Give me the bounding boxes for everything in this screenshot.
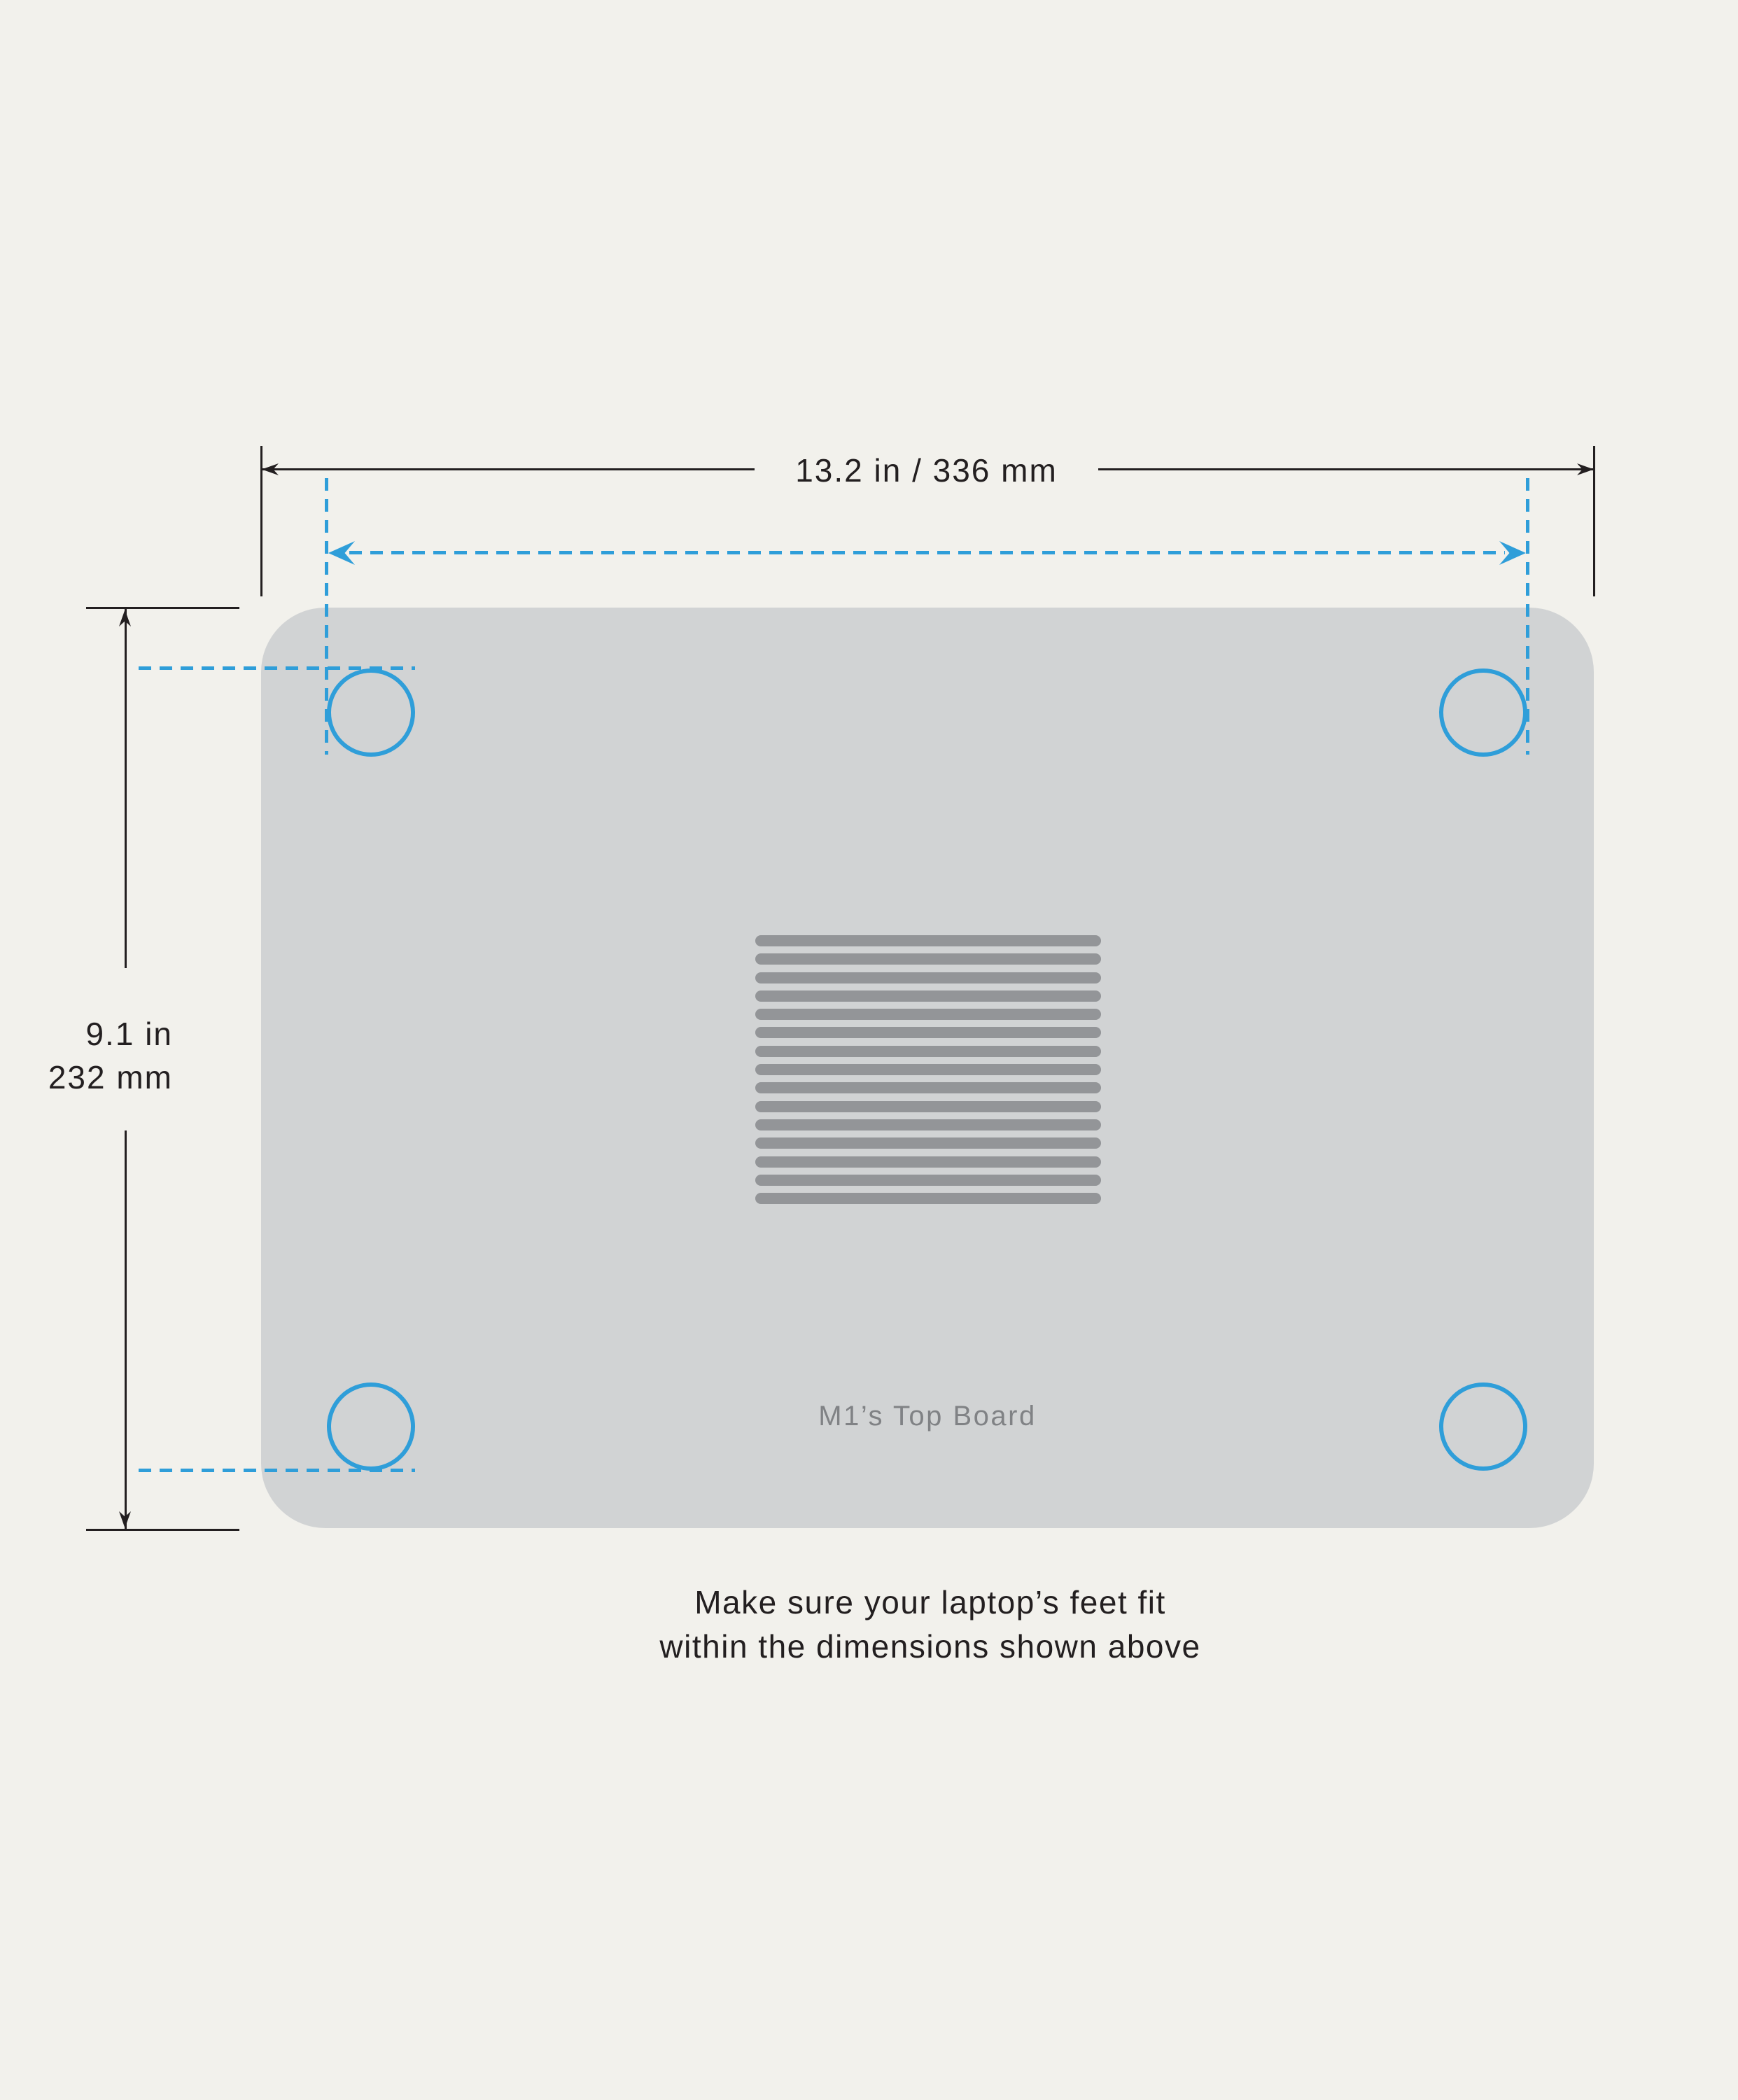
vent-slot <box>755 972 1101 983</box>
caption-line-2: within the dimensions shown above <box>580 1625 1280 1669</box>
height-extension-line-bottom <box>86 1529 239 1531</box>
vent-grill <box>755 935 1101 1204</box>
vent-slot <box>755 1193 1101 1204</box>
width-dimension-line-right <box>1098 468 1594 470</box>
vent-slot <box>755 1082 1101 1093</box>
feet-span-dimension-line <box>349 551 1505 554</box>
height-dimension-label: 9.1 in 232 mm <box>0 1012 173 1099</box>
width-dimension-line-left <box>261 468 755 470</box>
vent-slot <box>755 990 1101 1002</box>
height-dimension-line-bottom <box>125 1130 127 1529</box>
feet-guide-vertical-left <box>325 478 328 755</box>
height-extension-line-top <box>86 607 239 609</box>
height-dimension-inches: 9.1 in <box>0 1012 173 1056</box>
vent-slot <box>755 935 1101 946</box>
laptop-dimension-diagram: M1’s Top Board 13.2 in / 336 mm 9.1 in 2… <box>0 0 1738 2100</box>
foot-circle-top-right <box>1439 668 1527 757</box>
feet-guide-horizontal-bottom <box>139 1469 415 1472</box>
vent-slot <box>755 1027 1101 1038</box>
vent-slot <box>755 1009 1101 1020</box>
vent-slot <box>755 953 1101 965</box>
vent-slot <box>755 1119 1101 1130</box>
caption-line-1: Make sure your laptop’s feet fit <box>580 1581 1280 1625</box>
foot-circle-bottom-right <box>1439 1382 1527 1471</box>
caption: Make sure your laptop’s feet fit within … <box>580 1581 1280 1669</box>
vent-slot <box>755 1064 1101 1075</box>
vent-slot <box>755 1137 1101 1149</box>
height-dimension-millimeters: 232 mm <box>0 1056 173 1099</box>
vent-slot <box>755 1175 1101 1186</box>
vent-slot <box>755 1156 1101 1168</box>
feet-guide-horizontal-top <box>139 666 415 670</box>
width-dimension-label: 13.2 in / 336 mm <box>755 451 1098 489</box>
vent-slot <box>755 1101 1101 1112</box>
height-dimension-line-top <box>125 608 127 968</box>
foot-circle-bottom-left <box>327 1382 415 1471</box>
foot-circle-top-left <box>327 668 415 757</box>
board-label: M1’s Top Board <box>717 1401 1137 1432</box>
vent-slot <box>755 1046 1101 1057</box>
feet-guide-vertical-right <box>1526 478 1529 755</box>
